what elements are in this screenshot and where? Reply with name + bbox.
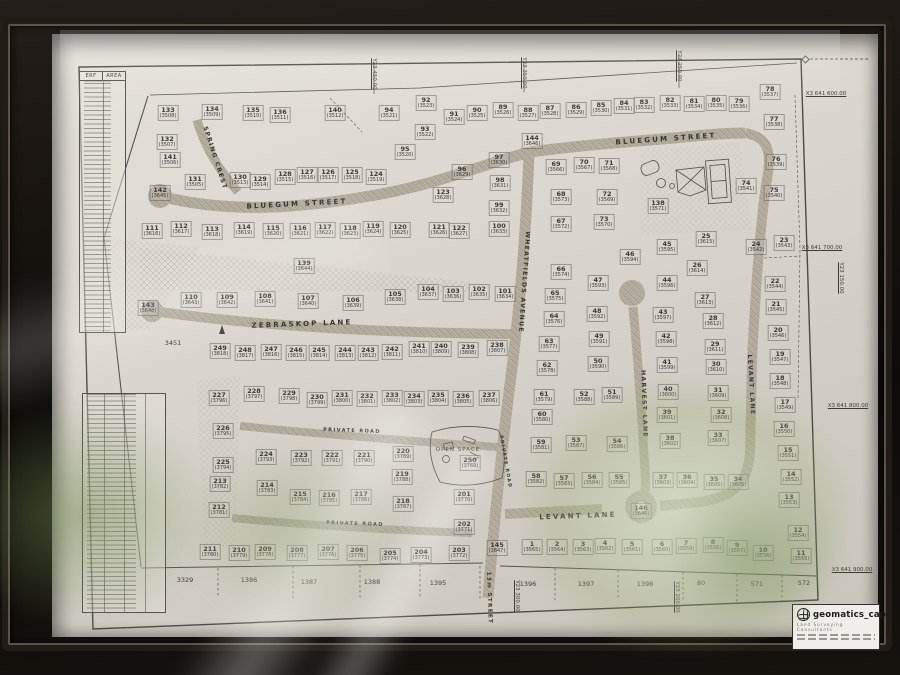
erf-number: (3769): [462, 464, 479, 469]
erf-number: (3519): [368, 178, 385, 183]
erf-number: (3537): [762, 93, 779, 98]
erf-number: (3535): [708, 104, 725, 109]
lot-label-225: 225(3794): [213, 457, 234, 473]
erf-number: (3596): [659, 284, 676, 289]
lot-label-207: 207(3776): [318, 544, 339, 560]
lot-label-32: 32(3608): [711, 407, 732, 423]
erf-number: (3571): [650, 207, 667, 212]
lot-label-30: 30(3610): [706, 359, 727, 375]
lot-label-235: 235(3804): [428, 390, 449, 406]
contact-line-illegible: [797, 638, 875, 640]
erf-number: (3594): [622, 258, 639, 263]
erf-number: (3628): [435, 196, 452, 201]
lot-label-98: 98(3631): [490, 175, 511, 191]
erf-number: (3646): [524, 142, 541, 147]
erf-number: (3772): [451, 554, 468, 559]
lot-label-244: 244(3813): [335, 345, 356, 361]
erf-number: (3553): [781, 501, 798, 506]
grid-coordinate-label: Y23 350.00: [521, 57, 527, 88]
lot-label-111: 111(3616): [142, 223, 163, 239]
lot-label-233: 233(3802): [382, 390, 403, 406]
erf-number: (3648): [140, 309, 157, 314]
erf-number: (3547): [772, 358, 789, 363]
lot-label-90: 90(3525): [467, 105, 488, 121]
culdesac-harvest: [619, 280, 645, 306]
erf-number: (3531): [616, 107, 633, 112]
lot-label-127: 127(3516): [297, 167, 318, 183]
lot-label-74: 74(3541): [736, 178, 757, 194]
lot-label-49: 49(3591): [589, 331, 610, 347]
erf-number: (3542): [748, 248, 765, 253]
lot-label-139: 139(3644): [294, 258, 315, 274]
erf-number: (3541): [738, 187, 755, 192]
lot-label-215: 215(3784): [290, 489, 311, 505]
lot-label-126: 126(3517): [318, 167, 339, 183]
lot-label-61: 61(3579): [534, 389, 555, 405]
lot-label-3: 3(3563): [573, 539, 594, 555]
erf-number: (3513): [232, 181, 249, 186]
erf-number: (3615): [698, 240, 715, 245]
erf-number: (3639): [345, 304, 362, 309]
erf-number: (3590): [590, 365, 607, 370]
lot-label-17: 17(3549): [775, 397, 796, 413]
lot-label-106: 106(3639): [343, 295, 364, 311]
erf-number: (3536): [731, 105, 748, 110]
erf-number: (3557): [729, 549, 746, 554]
lot-label-239: 239(3808): [458, 342, 479, 358]
lot-label-18: 18(3548): [770, 373, 791, 389]
erf-number: (3780): [202, 553, 219, 558]
erf-number: (3512): [327, 114, 344, 119]
erf-number: (3800): [334, 399, 351, 404]
erf-number: (3625): [392, 231, 409, 236]
erf-number: (3618): [204, 233, 221, 238]
erf-number: (3538): [766, 123, 783, 128]
erf-number: (3614): [689, 269, 706, 274]
lot-label-113: 113(3618): [202, 224, 223, 240]
erf-number: (3608): [713, 416, 730, 421]
lot-label-65: 65(3575): [545, 288, 566, 304]
erf-number: (3803): [406, 400, 423, 405]
erf-number: (3805): [455, 400, 472, 405]
lot-label-94: 94(3521): [379, 105, 400, 121]
lot-label-219: 219(3788): [392, 469, 413, 485]
lot-label-250: 250(3769): [460, 455, 481, 471]
lot-label-205: 205(3774): [380, 548, 401, 564]
surveyor-subtitle: Land Surveying Consultants: [797, 622, 875, 632]
lot-label-85: 85(3530): [591, 100, 612, 116]
lot-label-22: 22(3544): [765, 276, 786, 292]
lot-label-20: 20(3546): [768, 325, 789, 341]
lot-label-8: 8(3558): [703, 537, 724, 553]
erf-number: (3505): [187, 183, 204, 188]
erf-number: (3781): [211, 511, 228, 516]
erf-number: (3793): [258, 458, 275, 463]
erf-number: (3624): [365, 230, 382, 235]
lot-label-107: 107(3640): [298, 293, 319, 309]
lot-label-37: 37(3603): [653, 472, 674, 488]
lot-label-101: 101(3634): [495, 286, 516, 302]
erf-number: (3818): [212, 352, 229, 357]
lot-label-50: 50(3590): [588, 356, 609, 372]
table-divider: [124, 394, 125, 612]
lot-label-211: 211(3780): [200, 544, 221, 560]
erf-number: (3521): [381, 114, 398, 119]
grid-coordinate-label: Y23 150.00: [838, 262, 844, 293]
lot-label-241: 241(3810): [409, 341, 430, 357]
erf-number: (3574): [553, 273, 570, 278]
lot-label-80: 80(3535): [706, 95, 727, 111]
erf-number: (3545): [768, 308, 785, 313]
lot-label-13: 13(3553): [779, 492, 800, 508]
lot-label-60: 60(3580): [532, 409, 553, 425]
erf-number: (3782): [212, 485, 229, 490]
erf-number: (3569): [599, 198, 616, 203]
lot-label-122: 122(3627): [449, 223, 470, 239]
erf-number: (3622): [317, 231, 334, 236]
lot-label-245: 245(3814): [309, 345, 330, 361]
erf-number: (3593): [590, 284, 607, 289]
erf-area-table: ERF AREA: [79, 71, 126, 333]
erf-number: (3623): [342, 232, 359, 237]
erf-number: (3508): [160, 114, 177, 119]
erf-number: (3511): [272, 116, 289, 121]
lot-label-248: 248(3817): [235, 345, 256, 361]
erf-number: (3568): [601, 167, 618, 172]
lot-label-114: 114(3619): [234, 222, 255, 238]
erf-number: (3816): [263, 353, 280, 358]
boundary-parcel-number: 3451: [165, 339, 182, 347]
lot-label-237: 237(3806): [479, 390, 500, 406]
lot-label-145: 145(3647): [487, 540, 508, 556]
erf-number: (3577): [541, 345, 558, 350]
lot-label-36: 36(3604): [677, 472, 698, 488]
erf-number: (3582): [528, 480, 545, 485]
lot-label-105: 105(3638): [385, 289, 406, 305]
lot-label-100: 100(3633): [489, 221, 510, 237]
lot-label-35: 35(3605): [704, 474, 725, 490]
lot-label-54: 54(3586): [607, 436, 628, 452]
erf-number: (3649): [633, 512, 650, 517]
lot-label-209: 209(3778): [255, 544, 276, 560]
map-drawing-layer: ERF AREA 1(3565)2(3564)3(3563)4(3562)5(3…: [0, 0, 900, 675]
erf-number: (3771): [456, 528, 473, 533]
dashed-east-parcels: [795, 95, 800, 400]
lot-label-64: 64(3576): [544, 311, 565, 327]
erf-number: (3632): [491, 209, 508, 214]
erf-number: (3572): [553, 225, 570, 230]
north-arrow: [219, 325, 225, 334]
erf-number: (3609): [710, 394, 727, 399]
lot-label-238: 238(3807): [487, 340, 508, 356]
erf-number: (3783): [259, 489, 276, 494]
lot-label-144: 144(3646): [522, 133, 543, 149]
survey-beacon-marker: [802, 56, 809, 63]
erf-number: (3801): [359, 400, 376, 405]
erf-number: (3635): [471, 293, 488, 298]
erf-number: (3554): [790, 534, 807, 539]
lot-label-44: 44(3596): [657, 275, 678, 291]
boundary-parcel-number: 1387: [301, 578, 318, 586]
lot-label-246: 246(3815): [286, 345, 307, 361]
lot-label-236: 236(3805): [453, 391, 474, 407]
lot-label-75: 75(3540): [764, 185, 785, 201]
erf-number: (3525): [469, 114, 486, 119]
erf-number: (3637): [420, 293, 437, 298]
lot-label-16: 16(3550): [774, 421, 795, 437]
erf-number: (3644): [296, 267, 313, 272]
table-divider: [103, 82, 104, 332]
lot-label-216: 216(3785): [319, 490, 340, 506]
lot-label-116: 116(3621): [290, 223, 311, 239]
lot-label-57: 57(3583): [554, 473, 575, 489]
lot-label-138: 138(3571): [648, 198, 669, 214]
erf-number: (3810): [411, 350, 428, 355]
lot-label-102: 102(3635): [469, 284, 490, 300]
lot-label-82: 82(3533): [660, 95, 681, 111]
erf-number: (3806): [481, 399, 498, 404]
lot-label-48: 48(3592): [587, 306, 608, 322]
erf-number: (3804): [430, 399, 447, 404]
grid-coordinate-label: Y23 250.00: [676, 50, 682, 81]
lot-label-89: 89(3526): [493, 102, 514, 118]
erf-number: (3791): [324, 459, 341, 464]
erf-number: (3517): [320, 176, 337, 181]
erf-number: (3510): [245, 114, 262, 119]
boundary-parcel-number: 571: [751, 580, 763, 588]
erf-number: (3603): [655, 481, 672, 486]
lot-label-218: 218(3787): [393, 496, 414, 512]
lot-label-141: 141(3506): [160, 152, 181, 168]
lot-label-86: 86(3529): [566, 102, 587, 118]
erf-number: (3647): [489, 549, 506, 554]
lot-label-143: 143(3648): [138, 300, 159, 316]
erf-number: (3643): [183, 301, 200, 306]
lot-label-134: 134(3509): [202, 104, 223, 120]
lot-label-21: 21(3545): [766, 299, 787, 315]
erf-number: (3630): [491, 161, 508, 166]
lot-label-68: 68(3573): [551, 189, 572, 205]
lot-label-78: 78(3537): [760, 84, 781, 100]
lot-label-11: 11(3555): [791, 548, 812, 564]
lot-label-28: 28(3612): [703, 313, 724, 329]
erf-number: (3598): [658, 340, 675, 345]
erf-number: (3562): [597, 547, 614, 552]
erf-number: (3794): [215, 466, 232, 471]
erf-number: (3576): [546, 320, 563, 325]
erf-number: (3552): [783, 478, 800, 483]
erf-number: (3645): [152, 194, 169, 199]
lot-label-220: 220(3789): [393, 446, 414, 462]
lot-label-66: 66(3574): [551, 264, 572, 280]
erf-number: (3610): [708, 368, 725, 373]
erf-number: (3627): [451, 232, 468, 237]
erf-number: (3606): [730, 483, 747, 488]
lot-label-67: 67(3572): [551, 216, 572, 232]
erf-number: (3776): [320, 553, 337, 558]
lot-label-93: 93(3522): [415, 124, 436, 140]
lot-label-62: 62(3578): [537, 360, 558, 376]
erf-number: (3619): [236, 231, 253, 236]
erf-number: (3558): [705, 546, 722, 551]
lot-label-232: 232(3801): [357, 391, 378, 407]
erf-number: (3802): [384, 399, 401, 404]
erf-number: (3770): [456, 498, 473, 503]
erf-number: (3555): [793, 557, 810, 562]
erf-number: (3633): [491, 230, 508, 235]
erf-number: (3559): [678, 547, 695, 552]
erf-number: (3602): [662, 442, 679, 447]
erf-number: (3587): [568, 444, 585, 449]
erf-number: (3775): [349, 554, 366, 559]
lot-label-140: 140(3512): [325, 105, 346, 121]
lot-label-5: 5(3561): [622, 539, 643, 555]
erf-number: (3592): [589, 315, 606, 320]
erf-number: (3638): [387, 298, 404, 303]
erf-number: (3570): [596, 223, 613, 228]
lot-label-24: 24(3542): [746, 239, 767, 255]
lot-label-223: 223(3792): [291, 450, 312, 466]
lot-label-128: 128(3515): [275, 169, 296, 185]
erf-number: (3811): [384, 353, 401, 358]
erf-number: (3556): [755, 554, 772, 559]
erf-number: (3563): [575, 548, 592, 553]
lot-label-242: 242(3811): [382, 344, 403, 360]
erf-number: (3529): [568, 111, 585, 116]
lot-label-84: 84(3531): [614, 98, 635, 114]
erf-number: (3527): [520, 114, 537, 119]
lot-label-226: 226(3795): [213, 423, 234, 439]
erf-number: (3774): [382, 557, 399, 562]
framed-map-photo: ERF AREA 1(3565)2(3564)3(3563)4(3562)5(3…: [0, 0, 900, 675]
lot-label-27: 27(3613): [695, 292, 716, 308]
lot-label-63: 63(3577): [539, 336, 560, 352]
erf-number: (3573): [553, 198, 570, 203]
contact-line-illegible: [797, 634, 875, 636]
erf-number: (3581): [533, 446, 550, 451]
table-divider: [104, 394, 105, 612]
erf-number: (3773): [413, 556, 430, 561]
lot-label-2: 2(3564): [547, 539, 568, 555]
lot-label-39: 39(3601): [657, 407, 678, 423]
erf-number: (3560): [654, 548, 671, 553]
erf-number: (3600): [660, 393, 677, 398]
lot-label-228: 228(3797): [244, 386, 265, 402]
erf-number: (3789): [395, 455, 412, 460]
erf-number: (3620): [265, 232, 282, 237]
grid-coordinate-label: X3 641 700.00: [802, 245, 843, 251]
erf-number: (3807): [489, 349, 506, 354]
lot-label-58: 58(3582): [526, 471, 547, 487]
erf-number: (3631): [492, 184, 509, 189]
erf-number: (3526): [495, 111, 512, 116]
lot-label-99: 99(3632): [489, 200, 510, 216]
erf-number: (3550): [776, 430, 793, 435]
boundary-parcel-number: 1397: [578, 580, 595, 588]
lot-label-108: 108(3641): [255, 291, 276, 307]
south-boundary: [141, 563, 816, 576]
erf-number: (3532): [636, 106, 653, 111]
grid-coordinate-label: Y23 200.00: [674, 581, 680, 612]
erf-number: (3779): [231, 554, 248, 559]
erf-number: (3561): [624, 548, 641, 553]
erf-number: (3506): [162, 161, 179, 166]
lot-label-120: 120(3625): [390, 222, 411, 238]
erf-number: (3514): [252, 183, 269, 188]
erf-number: (3564): [549, 548, 566, 553]
lot-label-146: 146(3649): [631, 503, 652, 519]
lot-label-231: 231(3800): [332, 390, 353, 406]
lot-label-69: 69(3566): [546, 159, 567, 175]
lot-label-131: 131(3505): [185, 174, 206, 190]
lot-label-221: 221(3790): [354, 450, 375, 466]
erf-number: (3520): [397, 153, 414, 158]
lot-label-31: 31(3609): [708, 385, 729, 401]
boundary-parcel-number: 1395: [430, 579, 447, 587]
erf-number: (3641): [257, 300, 274, 305]
boundary-parcel-number: 572: [798, 579, 810, 587]
boundary-parcel-number: 1386: [241, 576, 258, 584]
lot-label-123: 123(3628): [433, 187, 454, 203]
erf-number: (3509): [204, 113, 221, 118]
lot-label-135: 135(3510): [243, 105, 264, 121]
lot-label-240: 240(3809): [431, 341, 452, 357]
erf-number: (3522): [417, 133, 434, 138]
erf-number: (3799): [309, 401, 326, 406]
erf-number: (3778): [257, 553, 274, 558]
lot-label-43: 43(3597): [653, 307, 674, 323]
lot-label-104: 104(3637): [418, 284, 439, 300]
lot-label-118: 118(3623): [340, 223, 361, 239]
lot-label-4: 4(3562): [595, 538, 616, 554]
erf-number: (3815): [288, 354, 305, 359]
erf-number: (3601): [659, 416, 676, 421]
erf-number: (3583): [556, 482, 573, 487]
boundary-parcel-number: 1396: [520, 580, 537, 588]
erf-number: (3595): [659, 248, 676, 253]
lot-label-92: 92(3523): [416, 95, 437, 111]
erf-number: (3551): [780, 454, 797, 459]
lot-label-249: 249(3818): [210, 343, 231, 359]
erf-number: (3813): [337, 354, 354, 359]
erf-number: (3565): [524, 548, 541, 553]
erf-number: (3604): [679, 481, 696, 486]
lot-label-247: 247(3816): [261, 344, 282, 360]
lot-label-88: 88(3527): [518, 105, 539, 121]
lot-label-73: 73(3570): [594, 214, 615, 230]
erf-number: (3786): [353, 498, 370, 503]
erf-number: (3548): [772, 382, 789, 387]
lot-label-6: 6(3560): [652, 539, 673, 555]
erf-number: (3817): [237, 354, 254, 359]
erf-number: (3567): [576, 166, 593, 171]
lot-label-51: 51(3589): [602, 387, 623, 403]
surveyor-title-block: geomatics_cape Land Surveying Consultant…: [792, 604, 880, 650]
lot-label-224: 224(3793): [256, 449, 277, 465]
lot-label-227: 227(3796): [209, 390, 230, 406]
erf-number: (3640): [300, 302, 317, 307]
erf-number: (3790): [356, 459, 373, 464]
boundary-parcel-number: 80: [697, 579, 705, 587]
erf-number: (3812): [360, 354, 377, 359]
lot-label-46: 46(3594): [620, 249, 641, 265]
erf-number: (3621): [292, 232, 309, 237]
lot-label-112: 112(3617): [171, 221, 192, 237]
erf-number: (3814): [311, 354, 328, 359]
lot-label-53: 53(3587): [566, 435, 587, 451]
erf-number: (3599): [659, 366, 676, 371]
erf-column-header: ERF: [80, 72, 103, 80]
